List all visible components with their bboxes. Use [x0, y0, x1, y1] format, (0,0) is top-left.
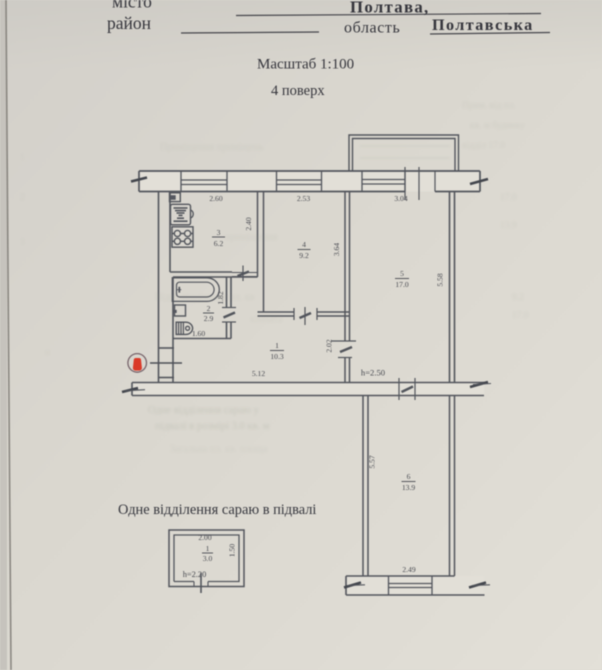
- svg-text:область: область: [344, 20, 400, 37]
- svg-text:10.3: 10.3: [270, 352, 283, 361]
- svg-text:6.2: 6.2: [214, 239, 224, 248]
- svg-text:місто: місто: [112, 0, 152, 12]
- svg-text:1: 1: [20, 153, 25, 163]
- svg-text:4: 4: [302, 240, 306, 249]
- svg-text:Масштаб 1:100: Масштаб 1:100: [257, 57, 354, 73]
- svg-text:район: район: [107, 13, 151, 33]
- svg-text:6: 6: [407, 472, 411, 481]
- svg-text:2.00: 2.00: [198, 533, 211, 542]
- svg-text:відділ 17.0: відділ 17.0: [462, 141, 505, 151]
- svg-text:п: п: [45, 348, 50, 358]
- svg-text:1: 1: [275, 341, 279, 350]
- svg-text:кв. м будинку: кв. м будинку: [470, 120, 525, 131]
- svg-text:5.57: 5.57: [368, 455, 377, 468]
- svg-text:3: 3: [20, 238, 25, 248]
- svg-text:2.02: 2.02: [325, 339, 334, 352]
- svg-text:5: 5: [400, 269, 404, 278]
- svg-text:2.40: 2.40: [244, 217, 253, 230]
- svg-text:17.0: 17.0: [395, 280, 408, 289]
- svg-text:3.0: 3.0: [203, 554, 213, 563]
- svg-text:2.49: 2.49: [402, 565, 415, 574]
- svg-text:Полтава,: Полтава,: [350, 0, 430, 17]
- svg-text:Загальна пл. кв. площа: Загальна пл. кв. площа: [170, 444, 268, 455]
- svg-text:2.53: 2.53: [297, 194, 310, 203]
- svg-text:9.2: 9.2: [299, 251, 309, 260]
- svg-text:2.9: 2.9: [204, 314, 214, 323]
- svg-text:Одне відділення сараю у: Одне відділення сараю у: [148, 405, 260, 416]
- svg-text:17.0: 17.0: [500, 193, 517, 203]
- svg-text:3: 3: [217, 228, 221, 237]
- svg-text:2.60: 2.60: [209, 194, 222, 203]
- svg-text:2: 2: [20, 193, 25, 203]
- svg-text:3.64: 3.64: [332, 243, 341, 256]
- svg-text:Відне відділення пл. кв: Відне відділення пл. кв: [155, 292, 255, 303]
- svg-text:кімната: кімната: [250, 314, 283, 325]
- svg-text:підвалі в розмірі 3.0 кв. м: підвалі в розмірі 3.0 кв. м: [155, 421, 270, 432]
- svg-text:Приміщення приміщень: Приміщення приміщень: [160, 142, 264, 153]
- svg-text:Полтавська: Полтавська: [432, 16, 534, 34]
- svg-text:Прим. від пл.: Прим. від пл.: [462, 101, 516, 111]
- svg-text:1: 1: [206, 544, 210, 553]
- svg-text:4 поверх: 4 поверх: [271, 83, 325, 99]
- svg-text:Одне відділення сараю в підвал: Одне відділення сараю в підвалі: [118, 502, 316, 518]
- svg-text:h=2.50: h=2.50: [361, 368, 385, 378]
- svg-text:13.9: 13.9: [500, 221, 517, 231]
- svg-text:приміщення: приміщення: [225, 232, 278, 243]
- svg-text:13.9: 13.9: [402, 483, 415, 492]
- svg-text:5.58: 5.58: [436, 273, 445, 286]
- svg-text:5.12: 5.12: [252, 369, 265, 378]
- svg-text:1.50: 1.50: [228, 544, 237, 557]
- svg-text:9.2: 9.2: [512, 293, 524, 303]
- svg-text:2: 2: [207, 304, 211, 313]
- svg-text:h=2.20: h=2.20: [183, 570, 207, 579]
- svg-text:17.0: 17.0: [512, 311, 529, 321]
- svg-text:1.60: 1.60: [192, 329, 205, 338]
- svg-text:3.04: 3.04: [394, 194, 407, 203]
